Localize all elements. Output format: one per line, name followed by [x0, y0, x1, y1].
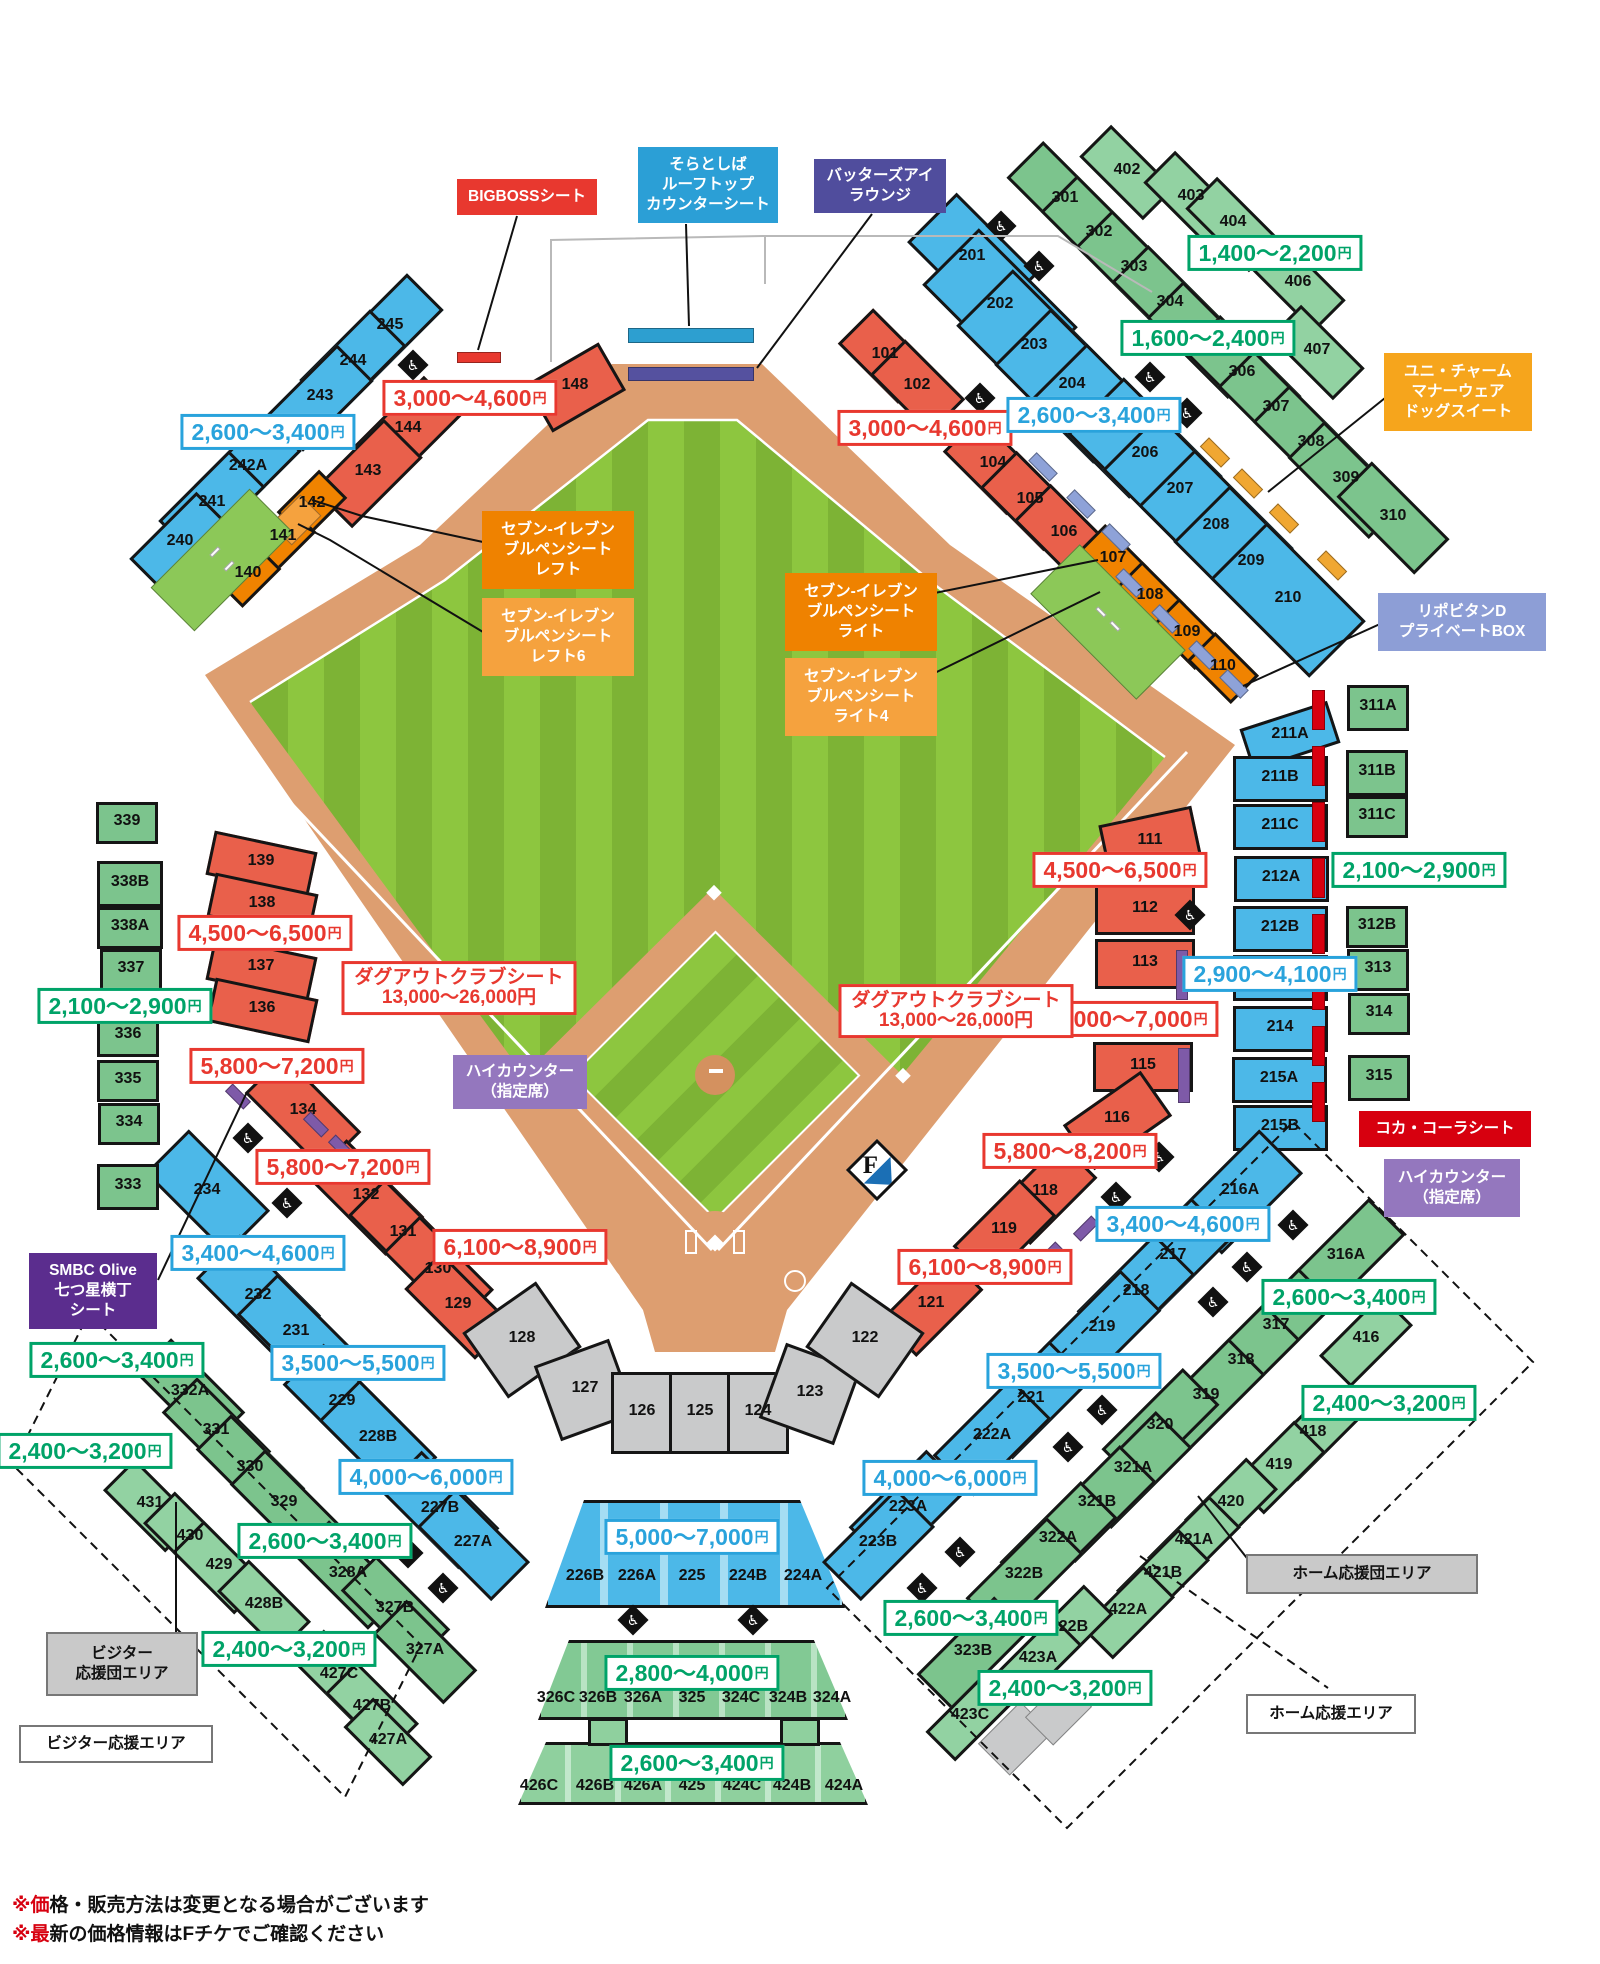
seat-strip [1317, 550, 1347, 580]
price-text: 3,000〜4,600 [848, 416, 986, 440]
seat-strip [628, 328, 754, 343]
section-338A [97, 907, 163, 949]
price-text: 円 [1183, 863, 1197, 878]
price-text: 円 [331, 425, 345, 440]
wheelchair-icon: ♿ [1277, 1209, 1308, 1240]
price-text: 円 [188, 999, 202, 1014]
price-label: 3,500〜5,500円 [986, 1353, 1161, 1389]
price-text: 円 [1452, 1396, 1466, 1411]
price-text: 2,600〜3,400 [894, 1606, 1032, 1630]
label-seven-eleven-bullpen-right4: セブン-イレブン ブルペンシート ライト4 [785, 658, 937, 736]
price-label: 3,400〜4,600円 [170, 1235, 345, 1271]
price-text: 円 [421, 1356, 435, 1371]
price-text: 円 [180, 1353, 194, 1368]
price-label: 2,600〜3,400円 [180, 414, 355, 450]
price-text: 2,800〜4,000 [615, 1661, 753, 1685]
wheelchair-glyph: ♿ [281, 1196, 294, 1210]
label-lipovitan-private-box: リポビタンD プライベートBOX [1378, 593, 1546, 651]
price-text: 円 [1412, 1290, 1426, 1305]
label-home-ouendan-area: ホーム応援団エリア [1246, 1554, 1478, 1594]
label-visitor-ouendan-area: ビジター 応援団エリア [46, 1632, 198, 1696]
home-plate-circle [683, 1211, 747, 1275]
price-text: 2,400〜3,200 [1312, 1391, 1450, 1415]
price-label: 4,000〜6,000円 [338, 1459, 513, 1495]
seat-strip [1312, 746, 1325, 786]
pitcher-mound [695, 1055, 735, 1095]
wheelchair-icon: ♿ [1197, 1286, 1228, 1317]
price-text: 円 [328, 926, 342, 941]
price-text: 5,000〜7,000 [615, 1525, 753, 1549]
price-text: 2,600〜3,400 [1017, 403, 1155, 427]
price-text: 円 [988, 421, 1002, 436]
price-text: 円 [406, 1160, 420, 1175]
price-text: 円 [1048, 1260, 1062, 1275]
label-high-counter-right: ハイカウンター （指定席） [1384, 1159, 1520, 1217]
price-text: 3,500〜5,500 [997, 1359, 1135, 1383]
label-visitor-ouen-area: ビジター応援エリア [19, 1725, 213, 1763]
price-text: 5,800〜7,200 [266, 1155, 404, 1179]
price-text: 円 [1128, 1681, 1142, 1696]
price-text: 4,500〜6,500 [1043, 858, 1181, 882]
price-text: 円 [1333, 967, 1347, 982]
price-text: 円 [1013, 1471, 1027, 1486]
price-text: 2,600〜3,400 [620, 1751, 758, 1775]
wheelchair-glyph: ♿ [995, 219, 1008, 233]
price-text: 5,000〜7,000 [1054, 1007, 1192, 1031]
price-text: 2,400〜3,200 [988, 1676, 1126, 1700]
price-label: 2,600〜3,400円 [609, 1745, 784, 1781]
price-text: 2,400〜3,200 [212, 1637, 350, 1661]
price-text: 円 [340, 1059, 354, 1074]
price-label: 6,100〜8,900円 [897, 1249, 1072, 1285]
section-311A [1347, 685, 1409, 731]
price-label: 2,100〜2,900円 [37, 988, 212, 1024]
section-125 [669, 1372, 731, 1454]
label-soratoshiba-rooftop: そらとしば ルーフトップ カウンターシート [638, 147, 778, 223]
price-label: 2,600〜3,400円 [29, 1342, 204, 1378]
price-text: 円 [1157, 408, 1171, 423]
price-text: 2,600〜3,400 [191, 420, 329, 444]
seat-strip [628, 367, 754, 381]
wheelchair-icon: ♿ [964, 382, 995, 413]
price-text: 円 [533, 391, 547, 406]
wheelchair-glyph: ♿ [1181, 406, 1194, 420]
section-338B [97, 861, 163, 907]
price-text: 3,400〜4,600 [181, 1241, 319, 1265]
wheelchair-icon: ♿ [1086, 1394, 1117, 1425]
price-text: 円 [1246, 1217, 1260, 1232]
terrace-tab-426b [588, 1718, 628, 1746]
price-text: 円 [1194, 1012, 1208, 1027]
seat-strip [1312, 858, 1325, 898]
wheelchair-glyph: ♿ [1184, 908, 1197, 922]
price-text: 1,400〜2,200 [1198, 241, 1336, 265]
price-text: 3,500〜5,500 [281, 1351, 419, 1375]
price-label: 4,000〜6,000円 [862, 1460, 1037, 1496]
price-label: 2,400〜3,200円 [977, 1670, 1152, 1706]
seat-strip [1312, 1026, 1325, 1066]
wheelchair-glyph: ♿ [437, 1581, 450, 1595]
wheelchair-icon: ♿ [737, 1604, 768, 1635]
terrace-tab-424b [780, 1718, 820, 1746]
price-text: 6,100〜8,900 [443, 1235, 581, 1259]
section-334 [98, 1103, 160, 1145]
section-333 [97, 1164, 159, 1210]
price-label: 4,500〜6,500円 [1032, 852, 1207, 888]
price-label: 2,600〜3,400円 [237, 1523, 412, 1559]
price-label: 1,600〜2,400円 [1120, 320, 1295, 356]
section-337 [100, 949, 162, 991]
wheelchair-icon: ♿ [906, 1572, 937, 1603]
wheelchair-icon: ♿ [1231, 1251, 1262, 1282]
price-text: 3,000〜4,600 [393, 386, 531, 410]
seat-strip [1312, 914, 1325, 954]
price-text: 円 [583, 1240, 597, 1255]
wheelchair-icon: ♿ [427, 1572, 458, 1603]
wheelchair-glyph: ♿ [1144, 370, 1157, 384]
price-text: 5,800〜8,200 [993, 1139, 1131, 1163]
price-text: 6,100〜8,900 [908, 1255, 1046, 1279]
wheelchair-glyph: ♿ [242, 1131, 255, 1145]
wheelchair-glyph: ♿ [1287, 1218, 1300, 1232]
seat-strip [1312, 802, 1325, 842]
price-label: 3,400〜4,600円 [1095, 1206, 1270, 1242]
price-text: 円 [352, 1642, 366, 1657]
footer-note-2: ※最新の価格情報はFチケでご確認ください [12, 1919, 384, 1946]
price-label: 2,400〜3,200円 [1301, 1385, 1476, 1421]
price-label: 1,400〜2,200円 [1187, 235, 1362, 271]
price-text: 4,500〜6,500 [188, 921, 326, 945]
price-label: 5,800〜8,200円 [982, 1133, 1157, 1169]
label-batters-eye-lounge: バッターズアイ ラウンジ [814, 159, 946, 213]
price-text: 円 [755, 1530, 769, 1545]
price-text: 2,100〜2,900 [48, 994, 186, 1018]
price-label: 2,600〜3,400円 [1261, 1279, 1436, 1315]
wheelchair-glyph: ♿ [1110, 1190, 1123, 1204]
wheelchair-glyph: ♿ [747, 1613, 760, 1627]
price-label: ダグアウトクラブシート 13,000〜26,000円 [838, 984, 1073, 1038]
section-311B [1346, 750, 1408, 796]
seat-strip [1178, 1048, 1190, 1103]
label-unicharm-dog-suite: ユニ・チャーム マナーウェア ドッグスイート [1384, 353, 1532, 431]
price-text: 円 [1338, 246, 1352, 261]
price-label: 2,900〜4,100円 [1182, 956, 1357, 992]
price-text: 5,800〜7,200 [200, 1054, 338, 1078]
price-label: 3,000〜4,600円 [382, 380, 557, 416]
price-label: 5,800〜7,200円 [255, 1149, 430, 1185]
section-339 [96, 802, 158, 844]
label-coca-cola-seat: コカ・コーラシート [1359, 1111, 1531, 1147]
section-335 [97, 1060, 159, 1102]
wheelchair-glyph: ♿ [1241, 1260, 1254, 1274]
price-text: 円 [1034, 1611, 1048, 1626]
price-text: 円 [489, 1470, 503, 1485]
price-text: 円 [1137, 1364, 1151, 1379]
label-bigboss-seat: BIGBOSSシート [457, 179, 597, 215]
price-label: 2,100〜2,900円 [1331, 852, 1506, 888]
label-smbc-olive-seat: SMBC Olive 七つ星横丁 シート [29, 1253, 157, 1329]
footer-note-1: ※価格・販売方法は変更となる場合がございます [12, 1890, 429, 1917]
price-label: 2,400〜3,200円 [0, 1433, 173, 1469]
section-312B [1346, 906, 1408, 948]
section-314 [1348, 993, 1410, 1035]
label-home-ouen-area: ホーム応援エリア [1246, 1694, 1416, 1734]
price-text: 2,100〜2,900 [1342, 858, 1480, 882]
seat-strip [1312, 690, 1325, 730]
price-label: 2,600〜3,400円 [1006, 397, 1181, 433]
label-seven-eleven-bullpen-right: セブン-イレブン ブルペンシート ライト [785, 573, 937, 651]
price-text: 円 [388, 1534, 402, 1549]
wheelchair-glyph: ♿ [954, 1545, 967, 1559]
price-label: 6,100〜8,900円 [432, 1229, 607, 1265]
section-315 [1348, 1055, 1410, 1101]
price-label: 5,000〜7,000円 [604, 1519, 779, 1555]
price-text: 2,400〜3,200 [8, 1439, 146, 1463]
section-311C [1346, 796, 1408, 838]
price-text: 円 [760, 1756, 774, 1771]
seat-strip [457, 352, 501, 363]
price-text: 円 [1133, 1144, 1147, 1159]
price-label: 4,500〜6,500円 [177, 915, 352, 951]
price-label: 2,800〜4,000円 [604, 1655, 779, 1691]
price-label: 5,800〜7,200円 [189, 1048, 364, 1084]
section-126 [611, 1372, 673, 1454]
price-text: 円 [755, 1666, 769, 1681]
wheelchair-icon: ♿ [271, 1187, 302, 1218]
price-text: 2,600〜3,400 [248, 1529, 386, 1553]
price-label: 2,600〜3,400円 [883, 1600, 1058, 1636]
price-text: 円 [1482, 863, 1496, 878]
label-seven-eleven-bullpen-left6: セブン-イレブン ブルペンシート レフト6 [482, 598, 634, 676]
price-label: 3,000〜4,600円 [837, 410, 1012, 446]
price-text: 2,600〜3,400 [1272, 1285, 1410, 1309]
wheelchair-icon: ♿ [617, 1604, 648, 1635]
price-text: 4,000〜6,000 [349, 1465, 487, 1489]
wheelchair-glyph: ♿ [407, 358, 420, 372]
stadium-seating-map: F ※価格・販売方法は変更となる場合がございます ※最新の価格情報はFチケでご確… [0, 0, 1600, 1964]
price-text: 4,000〜6,000 [873, 1466, 1011, 1490]
price-text: 円 [321, 1246, 335, 1261]
seat-strip [1312, 1082, 1325, 1122]
price-text: 1,600〜2,400 [1131, 326, 1269, 350]
wheelchair-glyph: ♿ [974, 391, 987, 405]
wheelchair-icon: ♿ [1052, 1431, 1083, 1462]
wheelchair-icon: ♿ [944, 1536, 975, 1567]
price-text: 3,400〜4,600 [1106, 1212, 1244, 1236]
wheelchair-glyph: ♿ [1096, 1403, 1109, 1417]
label-high-counter-left: ハイカウンター （指定席） [453, 1055, 587, 1109]
price-label: 3,500〜5,500円 [270, 1345, 445, 1381]
fighters-logo-letter: F [863, 1152, 878, 1180]
price-text: 円 [1271, 331, 1285, 346]
price-label: 2,400〜3,200円 [201, 1631, 376, 1667]
price-label: ダグアウトクラブシート 13,000〜26,000円 [341, 961, 576, 1015]
wheelchair-glyph: ♿ [1062, 1440, 1075, 1454]
wheelchair-glyph: ♿ [1207, 1295, 1220, 1309]
wheelchair-glyph: ♿ [1033, 259, 1046, 273]
wheelchair-icon: ♿ [1134, 361, 1165, 392]
price-text: 円 [148, 1444, 162, 1459]
price-text: 2,600〜3,400 [40, 1348, 178, 1372]
label-seven-eleven-bullpen-left: セブン-イレブン ブルペンシート レフト [482, 511, 634, 589]
wheelchair-glyph: ♿ [916, 1581, 929, 1595]
wheelchair-glyph: ♿ [627, 1613, 640, 1627]
price-text: 2,900〜4,100 [1193, 962, 1331, 986]
